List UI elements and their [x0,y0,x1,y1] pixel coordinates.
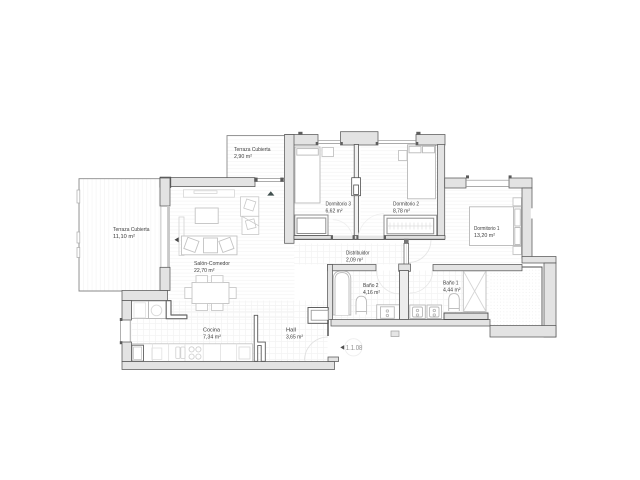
svg-text:Salón-Comedor: Salón-Comedor [194,261,230,267]
svg-text:6,62 m²: 6,62 m² [326,209,343,215]
svg-text:13,20 m²: 13,20 m² [474,233,495,239]
svg-text:8,78 m²: 8,78 m² [393,209,410,215]
svg-text:3,65 m²: 3,65 m² [286,335,303,341]
svg-text:4,44 m²: 4,44 m² [443,288,461,294]
svg-text:11,10 m²: 11,10 m² [113,234,135,240]
svg-text:Terraza Cubierta: Terraza Cubierta [113,227,150,233]
svg-text:Dormitorio 3: Dormitorio 3 [326,202,352,208]
svg-text:Hall: Hall [286,328,296,334]
svg-text:Cocina: Cocina [203,328,221,334]
svg-text:Baño 2: Baño 2 [363,283,379,289]
svg-text:Terraza Cubierta: Terraza Cubierta [234,147,271,153]
svg-text:22,70 m²: 22,70 m² [194,268,215,274]
svg-text:4,16 m²: 4,16 m² [363,290,380,296]
svg-text:Baño 1: Baño 1 [443,281,459,287]
svg-text:Dormitorio 1: Dormitorio 1 [474,226,500,232]
svg-text:Dormitorio 2: Dormitorio 2 [393,202,419,208]
svg-text:Distribuidor: Distribuidor [346,251,370,257]
svg-text:1.1.08: 1.1.08 [346,345,363,352]
svg-text:2,09 m²: 2,09 m² [346,258,363,264]
svg-text:7,34 m²: 7,34 m² [203,335,221,341]
svg-text:2,90 m²: 2,90 m² [234,154,252,160]
